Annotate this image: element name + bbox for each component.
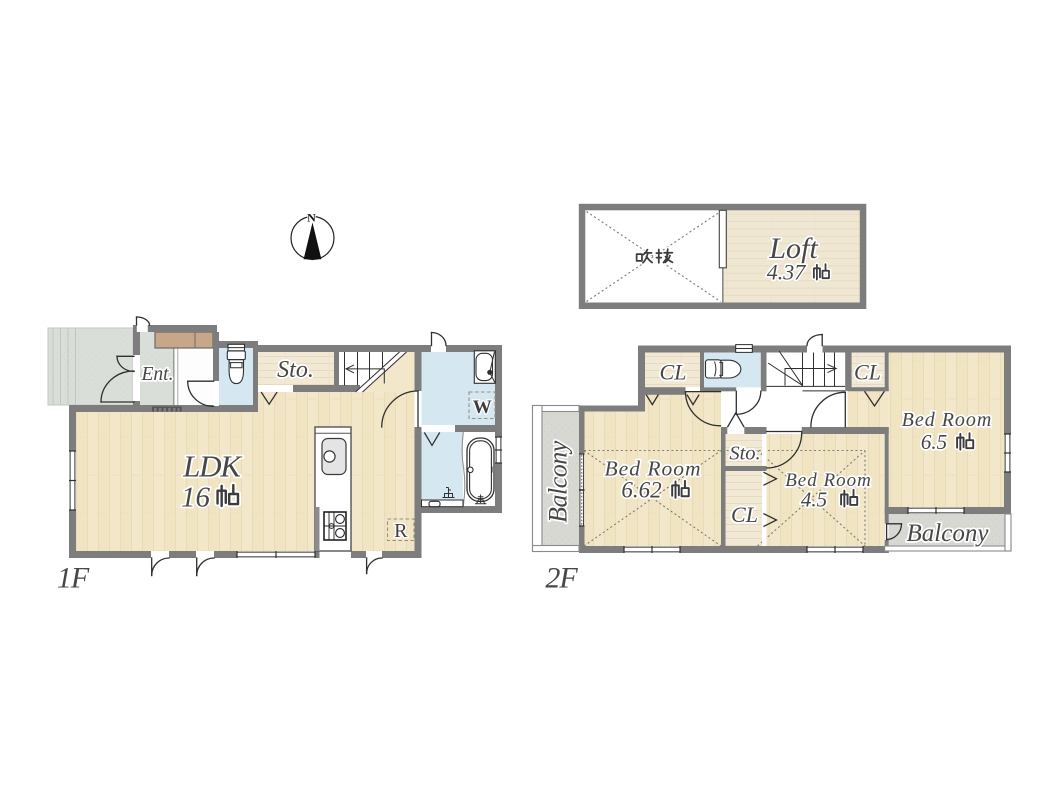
svg-text:Bed Room: Bed Room (785, 470, 872, 491)
svg-text:R: R (394, 520, 408, 542)
svg-text:LDK: LDK (182, 449, 243, 484)
svg-text:Balcony: Balcony (907, 520, 990, 547)
svg-text:CL: CL (731, 502, 758, 527)
svg-text:Bed Room: Bed Room (902, 409, 993, 431)
svg-text:CL: CL (660, 360, 687, 385)
svg-text:16: 16 (181, 482, 211, 514)
svg-text:4.37: 4.37 (767, 260, 807, 285)
svg-text:Sto.: Sto. (729, 443, 760, 465)
svg-text:Sto.: Sto. (277, 357, 314, 383)
svg-text:Ent.: Ent. (141, 364, 174, 385)
svg-text:CL: CL (854, 360, 881, 385)
svg-text:N: N (307, 211, 316, 225)
svg-text:2F: 2F (545, 562, 578, 595)
svg-text:6.62: 6.62 (621, 478, 661, 503)
svg-text:6.5: 6.5 (921, 430, 947, 454)
svg-text:4.5: 4.5 (801, 488, 827, 512)
svg-text:1F: 1F (57, 562, 90, 595)
svg-text:Balcony: Balcony (544, 440, 573, 523)
svg-text:W: W (473, 397, 492, 418)
